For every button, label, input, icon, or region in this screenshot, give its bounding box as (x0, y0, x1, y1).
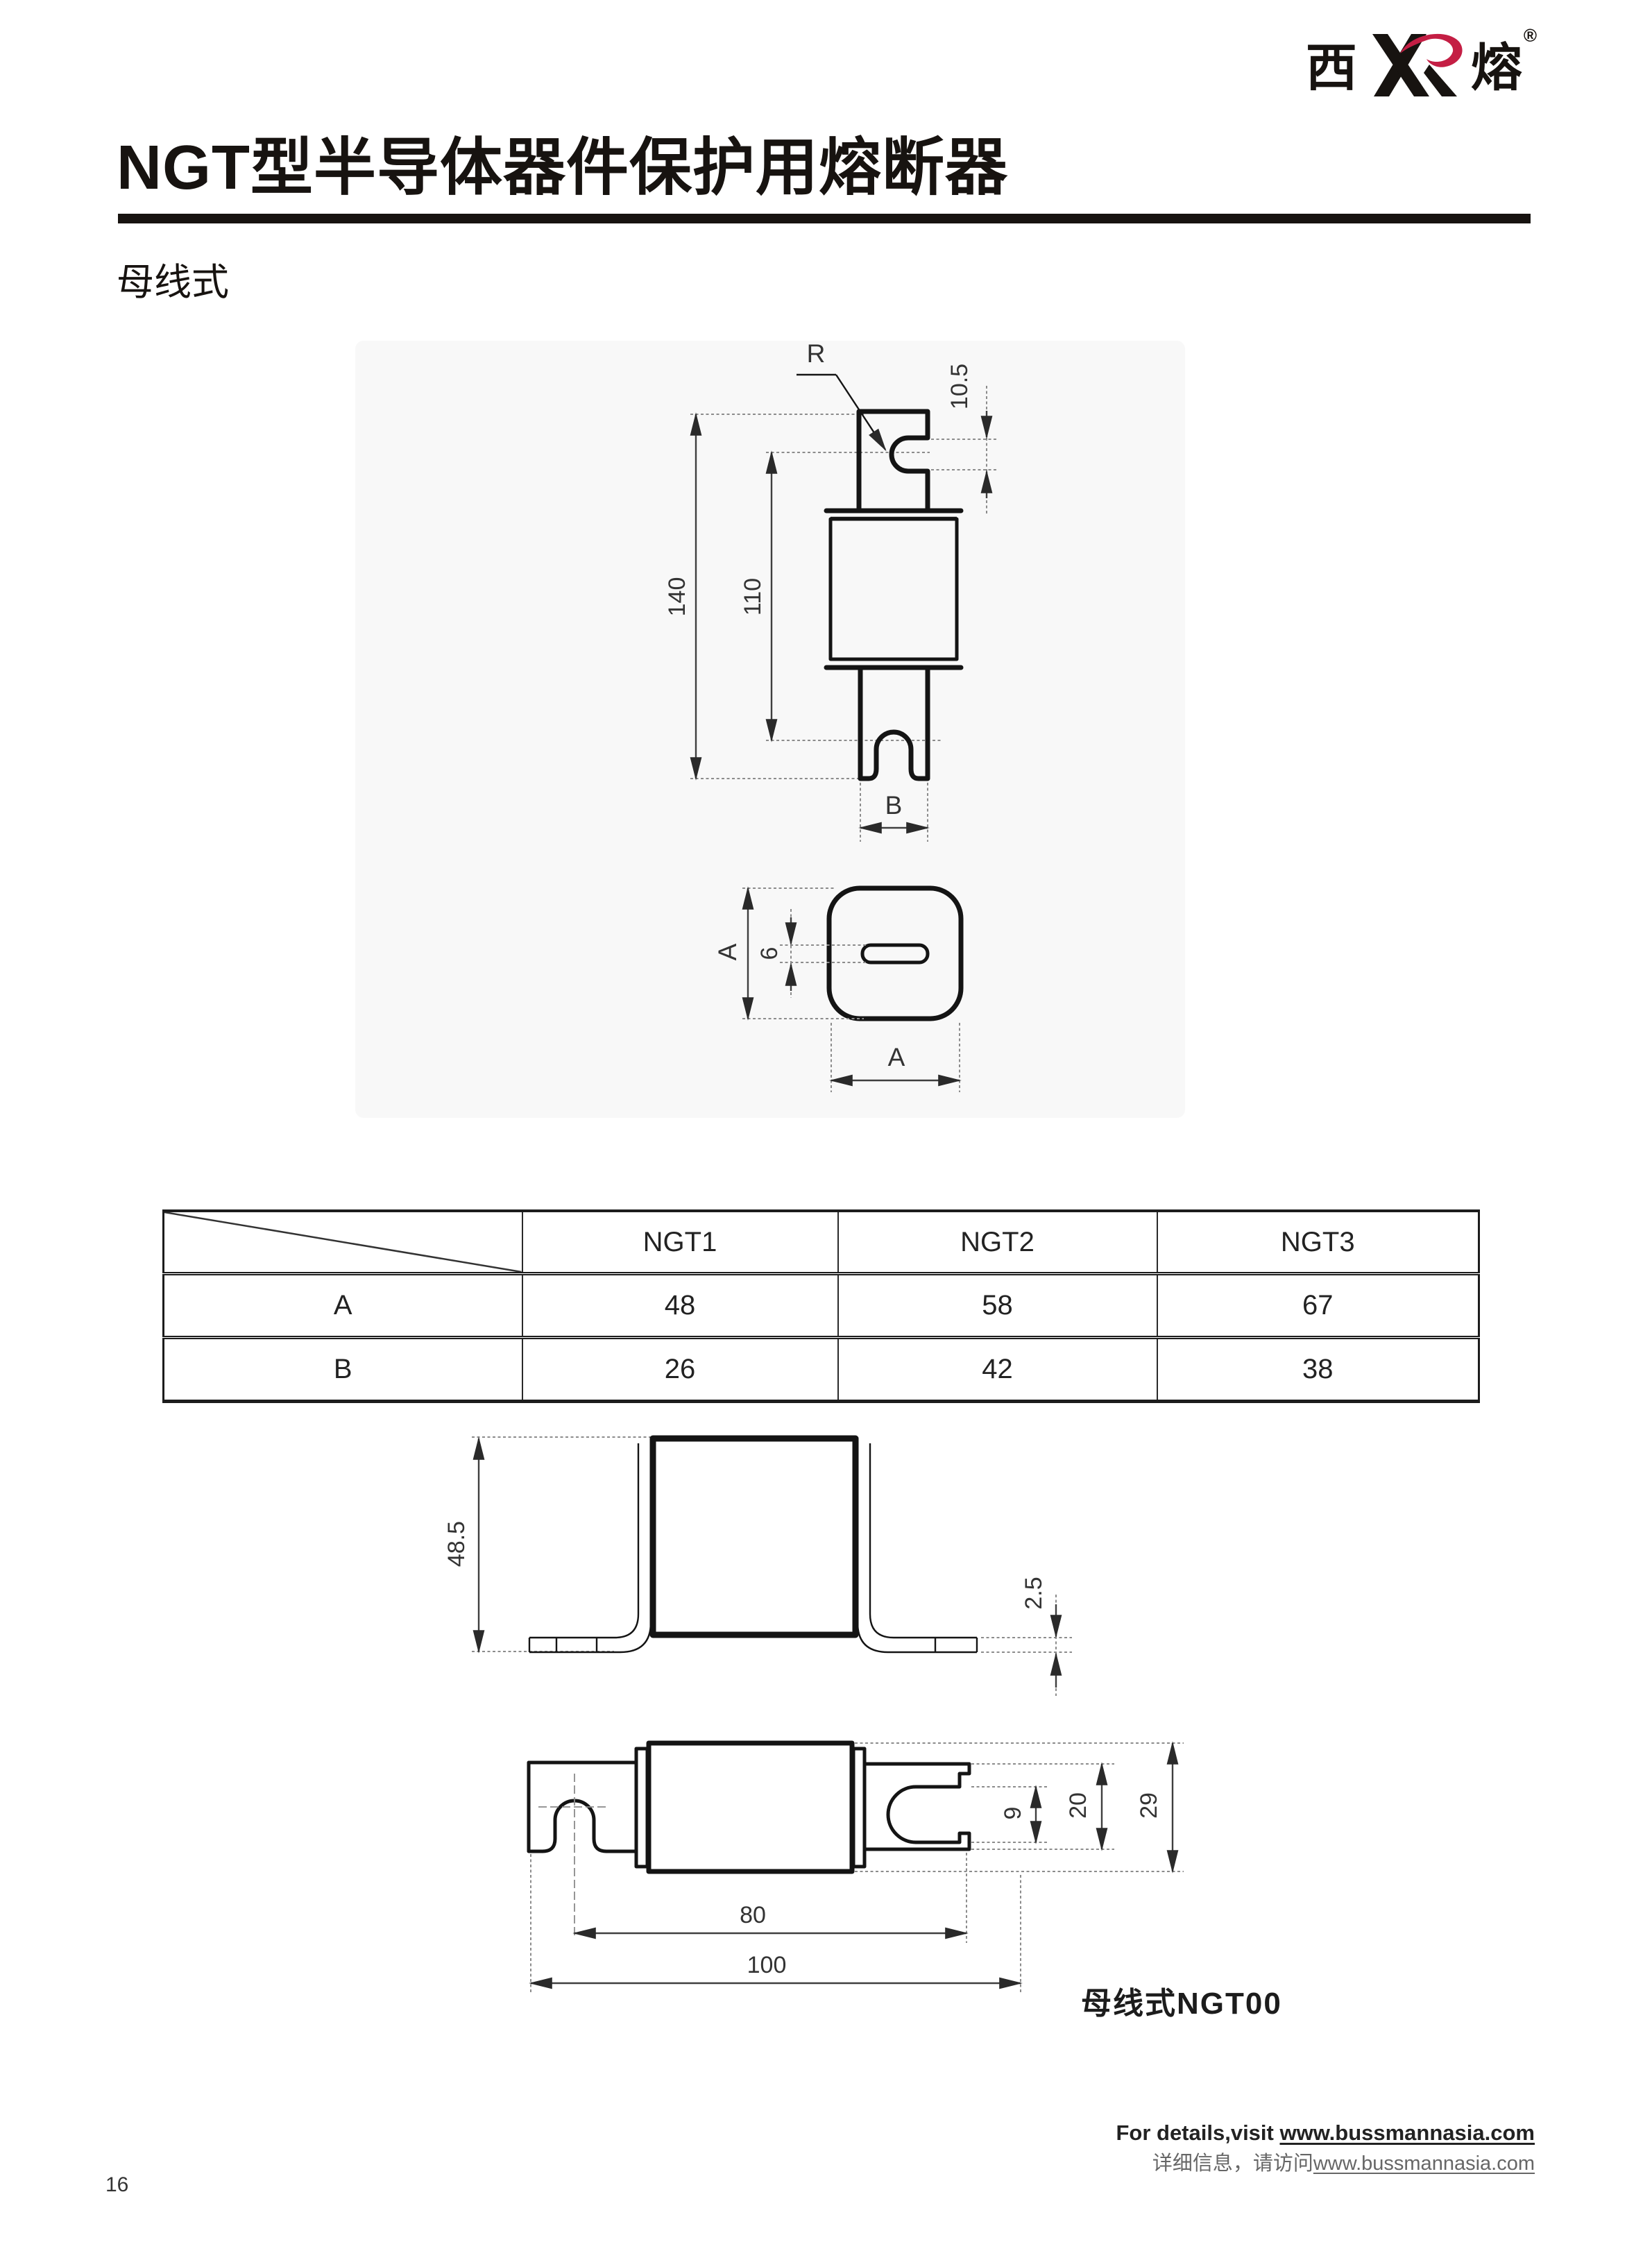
table-header-row: NGT1 NGT2 NGT3 (164, 1211, 1479, 1274)
column-header-ngt3: NGT3 (1157, 1211, 1479, 1274)
dim-80-label: 80 (740, 1902, 766, 1928)
side-view-drawing: 9 20 29 80 100 母线式NGT00 (529, 1743, 1282, 2021)
dim-20-label: 20 (1065, 1792, 1091, 1819)
brand-logo: 西 熔 ® (1306, 26, 1537, 101)
page-title: NGT型半导体器件保护用熔断器 (117, 117, 1008, 207)
row-label-A: A (164, 1274, 522, 1338)
xr-monogram-icon (1360, 28, 1470, 99)
bracket-view-drawing: 48.5 2.5 (443, 1437, 1072, 1696)
dim-48-5-label: 48.5 (443, 1521, 470, 1567)
left-end-cap (636, 1749, 647, 1867)
table-row: A 48 58 67 (164, 1274, 1479, 1338)
left-blade-outline (529, 1763, 635, 1851)
section-subtitle: 母线式 (117, 251, 229, 306)
footer-zh-text: 详细信息，请访问 (1152, 2152, 1313, 2175)
technical-drawings: 140 110 R 10.5 (0, 0, 1652, 2242)
cell-A-ngt3: 67 (1157, 1274, 1479, 1338)
right-flange-inner (858, 1443, 977, 1652)
bracket-body (653, 1438, 855, 1635)
logo-left-char: 西 (1306, 26, 1359, 101)
cell-B-ngt3: 38 (1157, 1338, 1479, 1402)
footer-en-link[interactable]: www.bussmannasia.com (1279, 2121, 1535, 2145)
right-blade-outline (865, 1764, 969, 1849)
footer-line-en: For details,visit www.bussmannasia.com (1116, 2118, 1535, 2149)
table-row: B 26 42 38 (164, 1338, 1479, 1402)
drawing-panel-background (355, 341, 1185, 1118)
cell-A-ngt1: 48 (522, 1274, 838, 1338)
datasheet-page: 西 熔 ® NGT型半导体器件保护用熔断器 母线式 140 (0, 0, 1652, 2242)
left-flange-outer (529, 1443, 638, 1638)
footer-en-text: For details,visit (1116, 2121, 1279, 2145)
logo-right-char: 熔 (1471, 26, 1524, 101)
column-header-ngt2: NGT2 (838, 1211, 1157, 1274)
footer-line-zh: 详细信息，请访问www.bussmannasia.com (1116, 2149, 1535, 2178)
side-body (649, 1743, 852, 1871)
table-corner-cell (164, 1211, 522, 1274)
footer-zh-link[interactable]: www.bussmannasia.com (1313, 2152, 1535, 2175)
side-view-caption: 母线式NGT00 (1081, 1987, 1282, 2021)
cell-B-ngt1: 26 (522, 1338, 838, 1402)
dim-9-label: 9 (1000, 1807, 1026, 1820)
dim-100-label: 100 (747, 1952, 787, 1978)
registered-mark: ® (1524, 25, 1537, 46)
left-flange-inner (529, 1443, 651, 1652)
page-footer: For details,visit www.bussmannasia.com 详… (1116, 2118, 1535, 2178)
right-flange-outer (870, 1443, 977, 1638)
column-header-ngt1: NGT1 (522, 1211, 838, 1274)
cell-A-ngt2: 58 (838, 1274, 1157, 1338)
diagonal-divider (164, 1212, 522, 1272)
dim-29-label: 29 (1136, 1792, 1162, 1819)
right-end-cap (853, 1749, 865, 1867)
cell-B-ngt2: 42 (838, 1338, 1157, 1402)
dim-2-5-label: 2.5 (1021, 1577, 1047, 1609)
dimension-table: NGT1 NGT2 NGT3 A 48 58 67 B 26 42 38 (162, 1209, 1480, 1403)
row-label-B: B (164, 1338, 522, 1402)
title-rule (118, 214, 1531, 223)
page-number: 16 (105, 2173, 128, 2197)
